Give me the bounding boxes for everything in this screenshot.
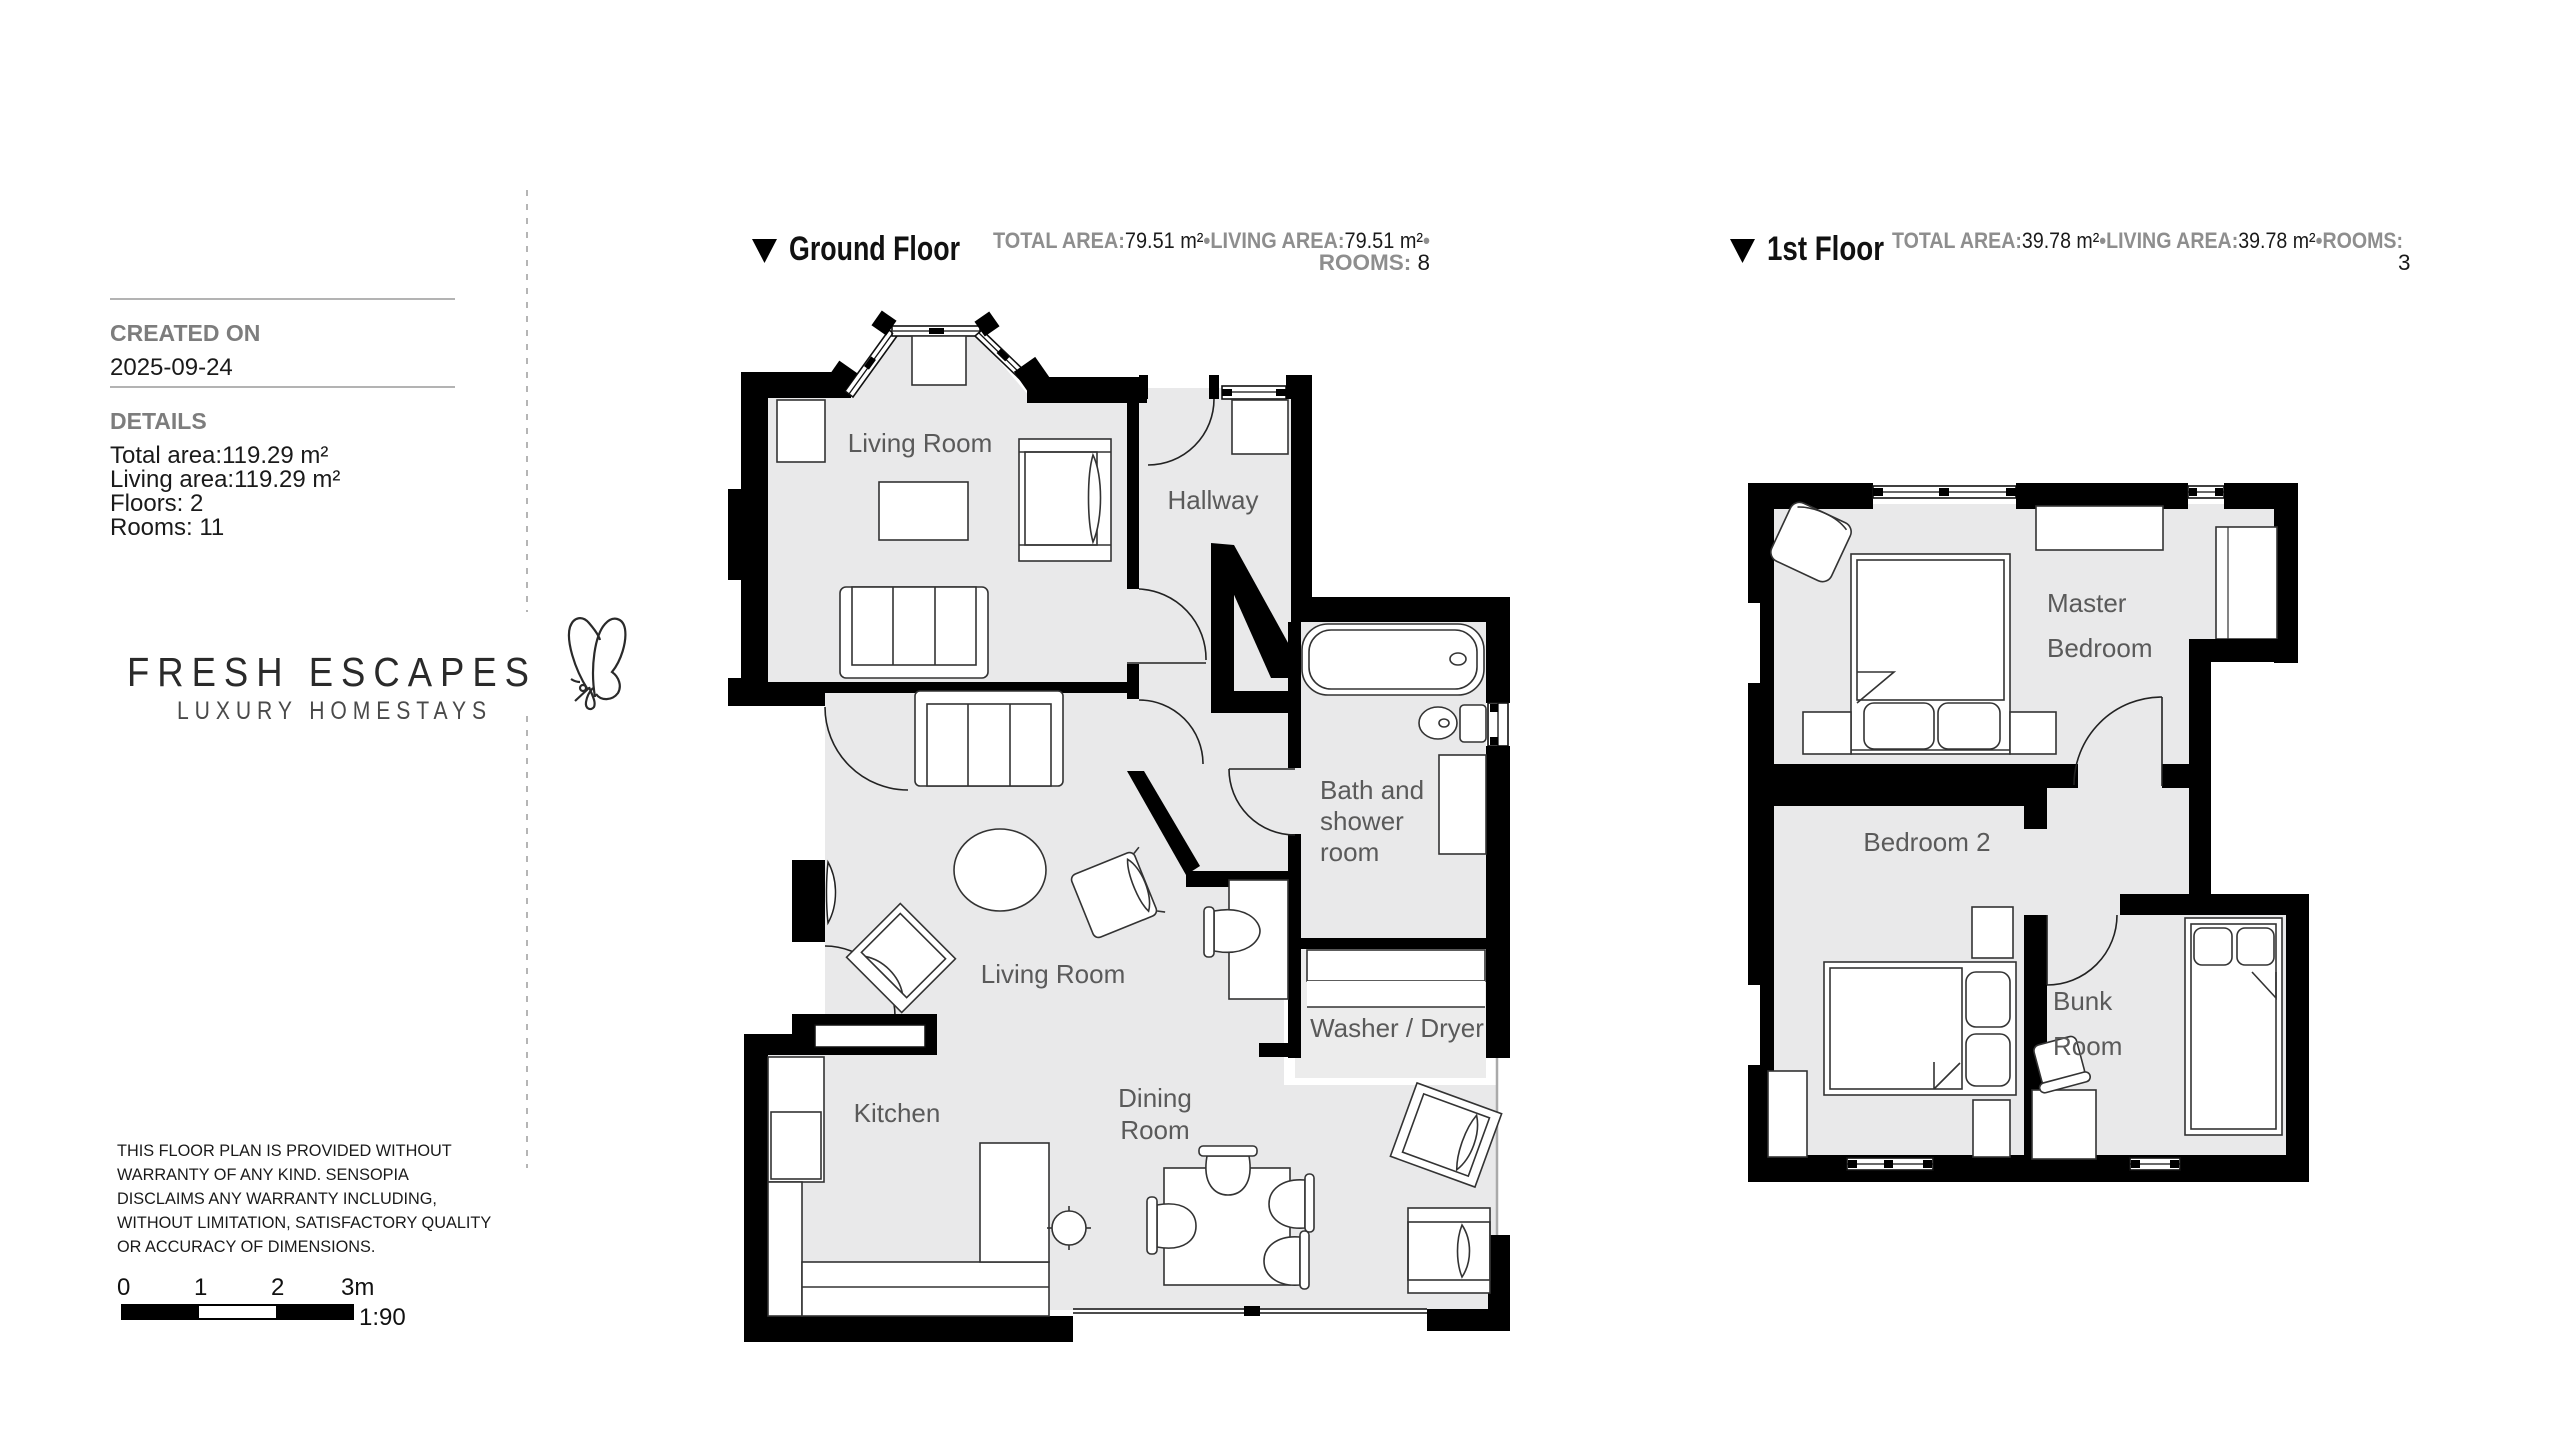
svg-text:Room: Room bbox=[1120, 1115, 1189, 1145]
svg-text:Floors: 2: Floors: 2 bbox=[110, 490, 203, 517]
svg-text:1st Floor: 1st Floor bbox=[1767, 230, 1884, 268]
svg-text:THIS FLOOR PLAN IS PROVIDED WI: THIS FLOOR PLAN IS PROVIDED WITHOUT bbox=[117, 1142, 452, 1160]
svg-text:Ground Floor: Ground Floor bbox=[789, 230, 960, 268]
svg-text:1:90: 1:90 bbox=[359, 1304, 406, 1331]
svg-text:CREATED ON: CREATED ON bbox=[110, 320, 260, 346]
svg-text:0: 0 bbox=[117, 1274, 130, 1301]
svg-text:Washer / Dryer: Washer / Dryer bbox=[1310, 1013, 1484, 1043]
svg-text:FRESH ESCAPES: FRESH ESCAPES bbox=[127, 649, 537, 695]
svg-text:Rooms: 11: Rooms: 11 bbox=[110, 514, 224, 541]
svg-text:3: 3 bbox=[2398, 250, 2411, 275]
svg-text:2: 2 bbox=[271, 1274, 284, 1301]
svg-text:Bath and: Bath and bbox=[1320, 775, 1424, 805]
svg-text:2025-09-24: 2025-09-24 bbox=[110, 354, 233, 381]
svg-text:WITHOUT LIMITATION, SATISFACTO: WITHOUT LIMITATION, SATISFACTORY QUALITY bbox=[117, 1214, 491, 1232]
svg-text:Kitchen: Kitchen bbox=[854, 1098, 941, 1128]
svg-text:OR ACCURACY OF DIMENSIONS.: OR ACCURACY OF DIMENSIONS. bbox=[117, 1238, 375, 1256]
svg-text:Room: Room bbox=[2053, 1031, 2122, 1061]
svg-text:Hallway: Hallway bbox=[1167, 485, 1258, 515]
svg-text:Bedroom: Bedroom bbox=[2047, 633, 2153, 663]
svg-text:TOTAL AREA:39.78 m²•LIVING ARE: TOTAL AREA:39.78 m²•LIVING AREA:39.78 m²… bbox=[1892, 228, 2403, 253]
svg-text:Total area:119.29 m²: Total area:119.29 m² bbox=[110, 442, 328, 469]
svg-text:Living Room: Living Room bbox=[848, 428, 993, 458]
svg-text:3m: 3m bbox=[341, 1274, 374, 1301]
svg-text:shower: shower bbox=[1320, 806, 1404, 836]
svg-text:Master: Master bbox=[2047, 588, 2127, 618]
svg-text:1: 1 bbox=[194, 1274, 207, 1301]
svg-text:LUXURY HOMESTAYS: LUXURY HOMESTAYS bbox=[177, 697, 492, 725]
svg-text:Living area:119.29 m²: Living area:119.29 m² bbox=[110, 466, 340, 493]
svg-text:Bunk: Bunk bbox=[2053, 986, 2113, 1016]
svg-text:DETAILS: DETAILS bbox=[110, 408, 207, 434]
svg-text:WARRANTY OF ANY KIND. SENSOPIA: WARRANTY OF ANY KIND. SENSOPIA bbox=[117, 1166, 409, 1184]
svg-text:ROOMS: 8: ROOMS: 8 bbox=[1319, 250, 1430, 275]
svg-text:DISCLAIMS ANY WARRANTY INCLUDI: DISCLAIMS ANY WARRANTY INCLUDING, bbox=[117, 1190, 437, 1208]
svg-text:Living Room: Living Room bbox=[981, 959, 1126, 989]
svg-text:Dining: Dining bbox=[1118, 1083, 1192, 1113]
svg-text:Bedroom 2: Bedroom 2 bbox=[1863, 827, 1990, 857]
svg-text:room: room bbox=[1320, 837, 1379, 867]
